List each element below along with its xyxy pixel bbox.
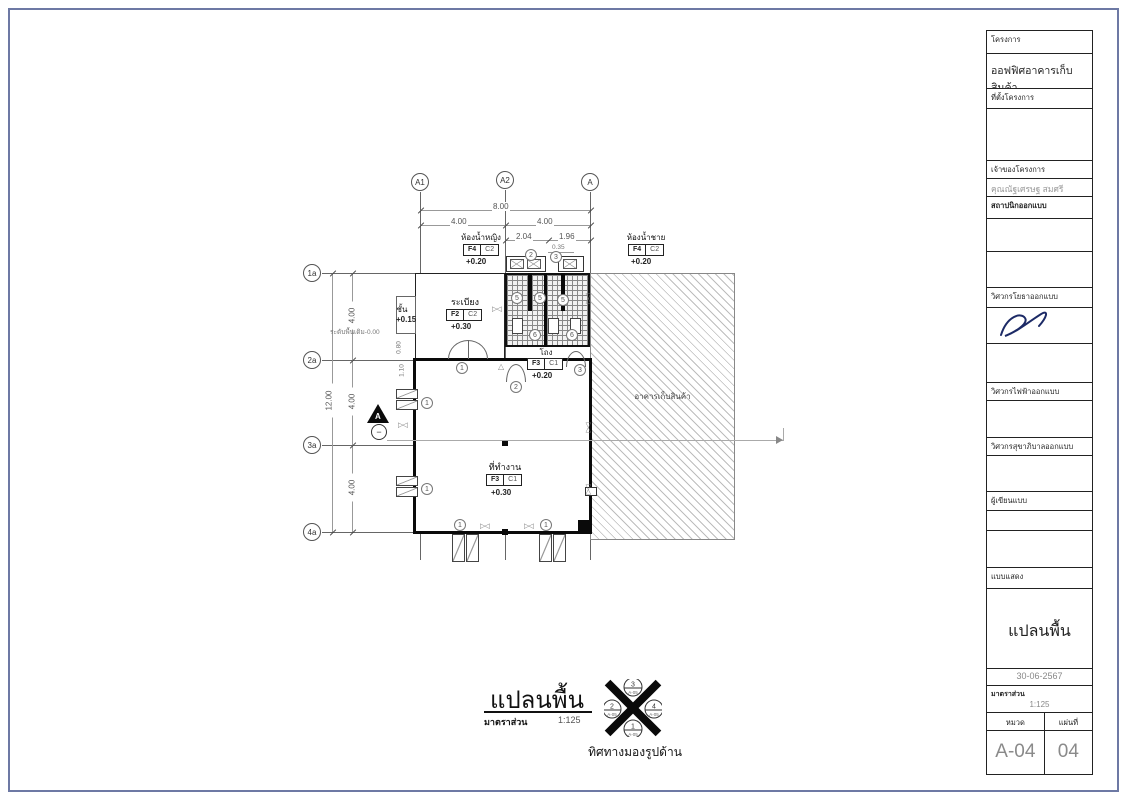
section-cut-line bbox=[387, 440, 783, 441]
grid-label: A1 bbox=[415, 178, 425, 187]
step-level: +0.15 bbox=[396, 315, 416, 324]
existing-ground-note: ระดับพื้นเดิม-0.00 bbox=[330, 327, 380, 337]
door-tag: 5 bbox=[557, 294, 569, 306]
door-tag: 3 bbox=[550, 251, 562, 263]
wall-marker-icon: ▷◁ bbox=[398, 421, 407, 429]
compass-number: 4 bbox=[652, 704, 656, 711]
window-louver bbox=[396, 400, 418, 410]
dim-sub-2: 1.96 bbox=[558, 232, 576, 241]
door-tag-number: 2 bbox=[529, 252, 533, 259]
grid-label: 4a bbox=[308, 528, 317, 537]
sheet-label: แผ่นที่ bbox=[1045, 713, 1092, 730]
door-tag: 3 bbox=[574, 364, 586, 376]
window-louver bbox=[466, 534, 479, 562]
window-tag: 1 bbox=[540, 519, 552, 531]
existing-building-label: อาคารเก็บสินค้า bbox=[591, 390, 734, 403]
level-wc-female: +0.20 bbox=[466, 257, 486, 266]
sheet-value: 04 bbox=[1045, 731, 1092, 775]
window-tag: 1 bbox=[454, 519, 466, 531]
window-louver bbox=[396, 476, 418, 486]
title-block: โครงการ ออฟฟิศอาคารเก็บสินค้า ที่ตั้งโคร… bbox=[986, 30, 1093, 775]
compass-circle-bottom: 1 A-05 bbox=[624, 720, 642, 737]
window-tag-number: 1 bbox=[425, 486, 429, 493]
sink-basin bbox=[510, 259, 524, 269]
sanitary-engineer-label: วิศวกรสุขาภิบาลออกแบบ bbox=[987, 438, 1092, 456]
project-name: ออฟฟิศอาคารเก็บสินค้า bbox=[987, 54, 1092, 89]
keynote-triangle-icon: △ bbox=[498, 362, 504, 371]
wall-marker-icon: ▷◁ bbox=[480, 522, 489, 530]
door-tag: 5 bbox=[534, 292, 546, 304]
dim-small-080: 0.80 bbox=[396, 337, 403, 359]
window-louver bbox=[396, 487, 418, 497]
door-tag-number: 5 bbox=[515, 295, 519, 302]
series-value: A-04 bbox=[987, 731, 1045, 775]
electrical-engineer-label: วิศวกรไฟฟ้าออกแบบ bbox=[987, 383, 1092, 401]
door-tag: 2 bbox=[510, 381, 522, 393]
ceiling-code: C1 bbox=[504, 475, 521, 485]
window-tag-number: 1 bbox=[544, 522, 548, 529]
room-label-wc-female: ห้องน้ำหญิง bbox=[453, 231, 509, 244]
dim-row-1: 4.00 bbox=[348, 302, 357, 330]
compass-circle-left: 2 A-05 bbox=[604, 700, 621, 718]
draftsman-empty bbox=[987, 511, 1092, 531]
ceiling-code: C2 bbox=[481, 245, 498, 255]
owner-label: เจ้าของโครงการ bbox=[987, 161, 1092, 179]
wc-fixture bbox=[548, 318, 559, 334]
section-sign: − bbox=[376, 427, 381, 437]
floor-code: F3 bbox=[528, 359, 545, 369]
architect-sign-empty-2 bbox=[987, 252, 1092, 288]
window-louver bbox=[396, 389, 418, 399]
floor-tag-wc-male: F4C2 bbox=[628, 244, 664, 256]
window-tag: 1 bbox=[421, 397, 433, 409]
grid-bubble-3a: 3a bbox=[303, 436, 321, 454]
scale-value: 1:125 bbox=[991, 700, 1088, 709]
wall-marker-icon: ▷◁ bbox=[492, 305, 501, 313]
draftsman-label: ผู้เขียนแบบ bbox=[987, 492, 1092, 511]
view-direction-compass: 3 A-05 2 A-05 4 A-05 1 A-05 bbox=[604, 679, 662, 737]
dim-total-width: 8.00 bbox=[492, 202, 510, 211]
footer-scale-label: มาตราส่วน bbox=[484, 715, 527, 729]
door-tag-number: 2 bbox=[514, 384, 518, 391]
scale-cell: มาตราส่วน 1:125 bbox=[987, 686, 1092, 713]
grid-bubble-4a: 4a bbox=[303, 523, 321, 541]
wall-marker-icon: ▷◁ bbox=[584, 423, 592, 432]
grid-label: 2a bbox=[308, 356, 317, 365]
stall-partition bbox=[528, 273, 532, 311]
window-louver bbox=[539, 534, 552, 562]
civil-engineer-signature bbox=[987, 308, 1092, 344]
grid-label: 3a bbox=[308, 441, 317, 450]
footer-scale-value: 1:125 bbox=[558, 715, 581, 725]
compass-circle-top: 3 A-05 bbox=[624, 679, 642, 696]
series-label: หมวด bbox=[987, 713, 1045, 730]
floor-tag-hall: F3C1 bbox=[527, 358, 563, 370]
compass-ref: A-05 bbox=[628, 732, 638, 737]
door-tag-number: 5 bbox=[561, 297, 565, 304]
dim-small-035: 0.35 bbox=[552, 244, 565, 251]
compass-number: 2 bbox=[610, 704, 614, 711]
grid-bubble-A: A bbox=[581, 173, 599, 191]
compass-ref: A-05 bbox=[607, 712, 617, 717]
section-line-end-tick bbox=[783, 428, 784, 441]
door-tag-number: 3 bbox=[554, 254, 558, 261]
door-tag-number: 3 bbox=[578, 367, 582, 374]
dim-bay-1: 4.00 bbox=[450, 217, 468, 226]
wall-marker-icon: ▷◁ bbox=[584, 294, 592, 303]
grid-bubble-1a: 1a bbox=[303, 264, 321, 282]
main-room-walls bbox=[413, 358, 592, 534]
wc-fixture bbox=[512, 318, 523, 334]
room-label-work-area: ที่ทำงาน bbox=[478, 460, 532, 474]
sheet-header-row: หมวด แผ่นที่ bbox=[987, 713, 1092, 731]
draftsman-empty-2 bbox=[987, 531, 1092, 568]
section-arrow-icon bbox=[776, 436, 783, 444]
sanitary-sign-empty bbox=[987, 456, 1092, 492]
dim-row-3: 4.00 bbox=[348, 474, 357, 502]
site-value-empty bbox=[987, 109, 1092, 161]
wall-marker-icon: ▷◁ bbox=[584, 485, 592, 494]
signature-icon bbox=[987, 308, 1077, 342]
site-label: ที่ตั้งโครงการ bbox=[987, 89, 1092, 109]
compass-number: 1 bbox=[631, 724, 635, 731]
door-tag: 6 bbox=[566, 329, 578, 341]
floor-tag-work-area: F3C1 bbox=[486, 474, 522, 486]
level-wc-male: +0.20 bbox=[631, 257, 651, 266]
sheet-value-row: A-04 04 bbox=[987, 731, 1092, 775]
wall-marker-icon: ▷◁ bbox=[524, 522, 533, 530]
architect-sign-empty bbox=[987, 219, 1092, 252]
drawing-shows-label: แบบแสดง bbox=[987, 568, 1092, 589]
compass-circle-right: 4 A-05 bbox=[645, 700, 662, 718]
grid-label: 1a bbox=[308, 269, 317, 278]
compass-number: 3 bbox=[631, 682, 635, 689]
plan-title: แปลนพื้น bbox=[478, 680, 596, 719]
dim-sub-1: 2.04 bbox=[515, 232, 533, 241]
floor-code: F4 bbox=[629, 245, 646, 255]
drawing-date: 30-06-2567 bbox=[987, 669, 1092, 686]
owner-name: คุณณัฐเศรษฐ สมศรี bbox=[987, 179, 1092, 197]
compass-ref: A-05 bbox=[628, 690, 638, 695]
ceiling-code: C2 bbox=[646, 245, 663, 255]
door-tag: 5 bbox=[511, 292, 523, 304]
grid-bubble-A2: A2 bbox=[496, 171, 514, 189]
window-louver bbox=[553, 534, 566, 562]
window-tag-number: 1 bbox=[425, 400, 429, 407]
door-tag-number: 6 bbox=[533, 332, 537, 339]
floor-code: F2 bbox=[447, 310, 464, 320]
door-tag-number: 6 bbox=[570, 332, 574, 339]
section-letter: A bbox=[375, 412, 381, 421]
section-marker-circle: − bbox=[371, 424, 387, 440]
dim-total-height: 12.00 bbox=[325, 384, 334, 418]
door-tag: 2 bbox=[525, 249, 537, 261]
dim-row-2: 4.00 bbox=[348, 388, 357, 416]
level-terrace: +0.30 bbox=[451, 322, 471, 331]
door-leaf-line bbox=[468, 340, 469, 359]
toilet-divider-wall bbox=[544, 273, 547, 347]
door-corner-solid bbox=[578, 520, 592, 531]
floor-code: F3 bbox=[487, 475, 504, 485]
title-underline bbox=[484, 711, 592, 713]
existing-building-hatch: อาคารเก็บสินค้า bbox=[590, 273, 735, 540]
room-label-wc-male: ห้องน้ำชาย bbox=[618, 231, 674, 244]
grid-bubble-2a: 2a bbox=[303, 351, 321, 369]
civil-engineer-empty bbox=[987, 344, 1092, 383]
floor-tag-wc-female: F4C2 bbox=[463, 244, 499, 256]
view-direction-label: ทิศทางมองรูปด้าน bbox=[583, 743, 687, 762]
compass-ref: A-05 bbox=[649, 712, 659, 717]
civil-engineer-label: วิศวกรโยธาออกแบบ bbox=[987, 288, 1092, 308]
project-label: โครงการ bbox=[987, 31, 1092, 54]
architect-label: สถาปนิกออกแบบ bbox=[987, 197, 1092, 219]
ceiling-code: C1 bbox=[545, 359, 562, 369]
door-tag-number: 1 bbox=[460, 365, 464, 372]
level-hall: +0.20 bbox=[532, 371, 552, 380]
door-tag: 6 bbox=[529, 329, 541, 341]
window-tag: 1 bbox=[421, 483, 433, 495]
drawing-sheet: A1 A2 A 1a 2a 3a 4a 8.00 4.00 4.00 2.04 … bbox=[0, 0, 1129, 801]
scale-label: มาตราส่วน bbox=[991, 689, 1088, 700]
electrical-sign-empty bbox=[987, 401, 1092, 438]
window-tag-number: 1 bbox=[458, 522, 462, 529]
drawing-title: แปลนพื้น bbox=[987, 589, 1092, 669]
door-tag-number: 5 bbox=[538, 295, 542, 302]
level-work-area: +0.30 bbox=[491, 488, 511, 497]
dim-small-110: 1.10 bbox=[399, 360, 406, 382]
floor-code: F4 bbox=[464, 245, 481, 255]
grid-bubble-A1: A1 bbox=[411, 173, 429, 191]
window-louver bbox=[452, 534, 465, 562]
sink-basin bbox=[563, 259, 577, 269]
dim-bay-2: 4.00 bbox=[536, 217, 554, 226]
column bbox=[502, 529, 508, 535]
floor-tag-terrace: F2C2 bbox=[446, 309, 482, 321]
door-tag: 1 bbox=[456, 362, 468, 374]
ceiling-code: C2 bbox=[464, 310, 481, 320]
room-label-terrace: ระเบียง bbox=[441, 295, 489, 309]
grid-label: A2 bbox=[500, 176, 510, 185]
grid-label: A bbox=[587, 178, 592, 187]
